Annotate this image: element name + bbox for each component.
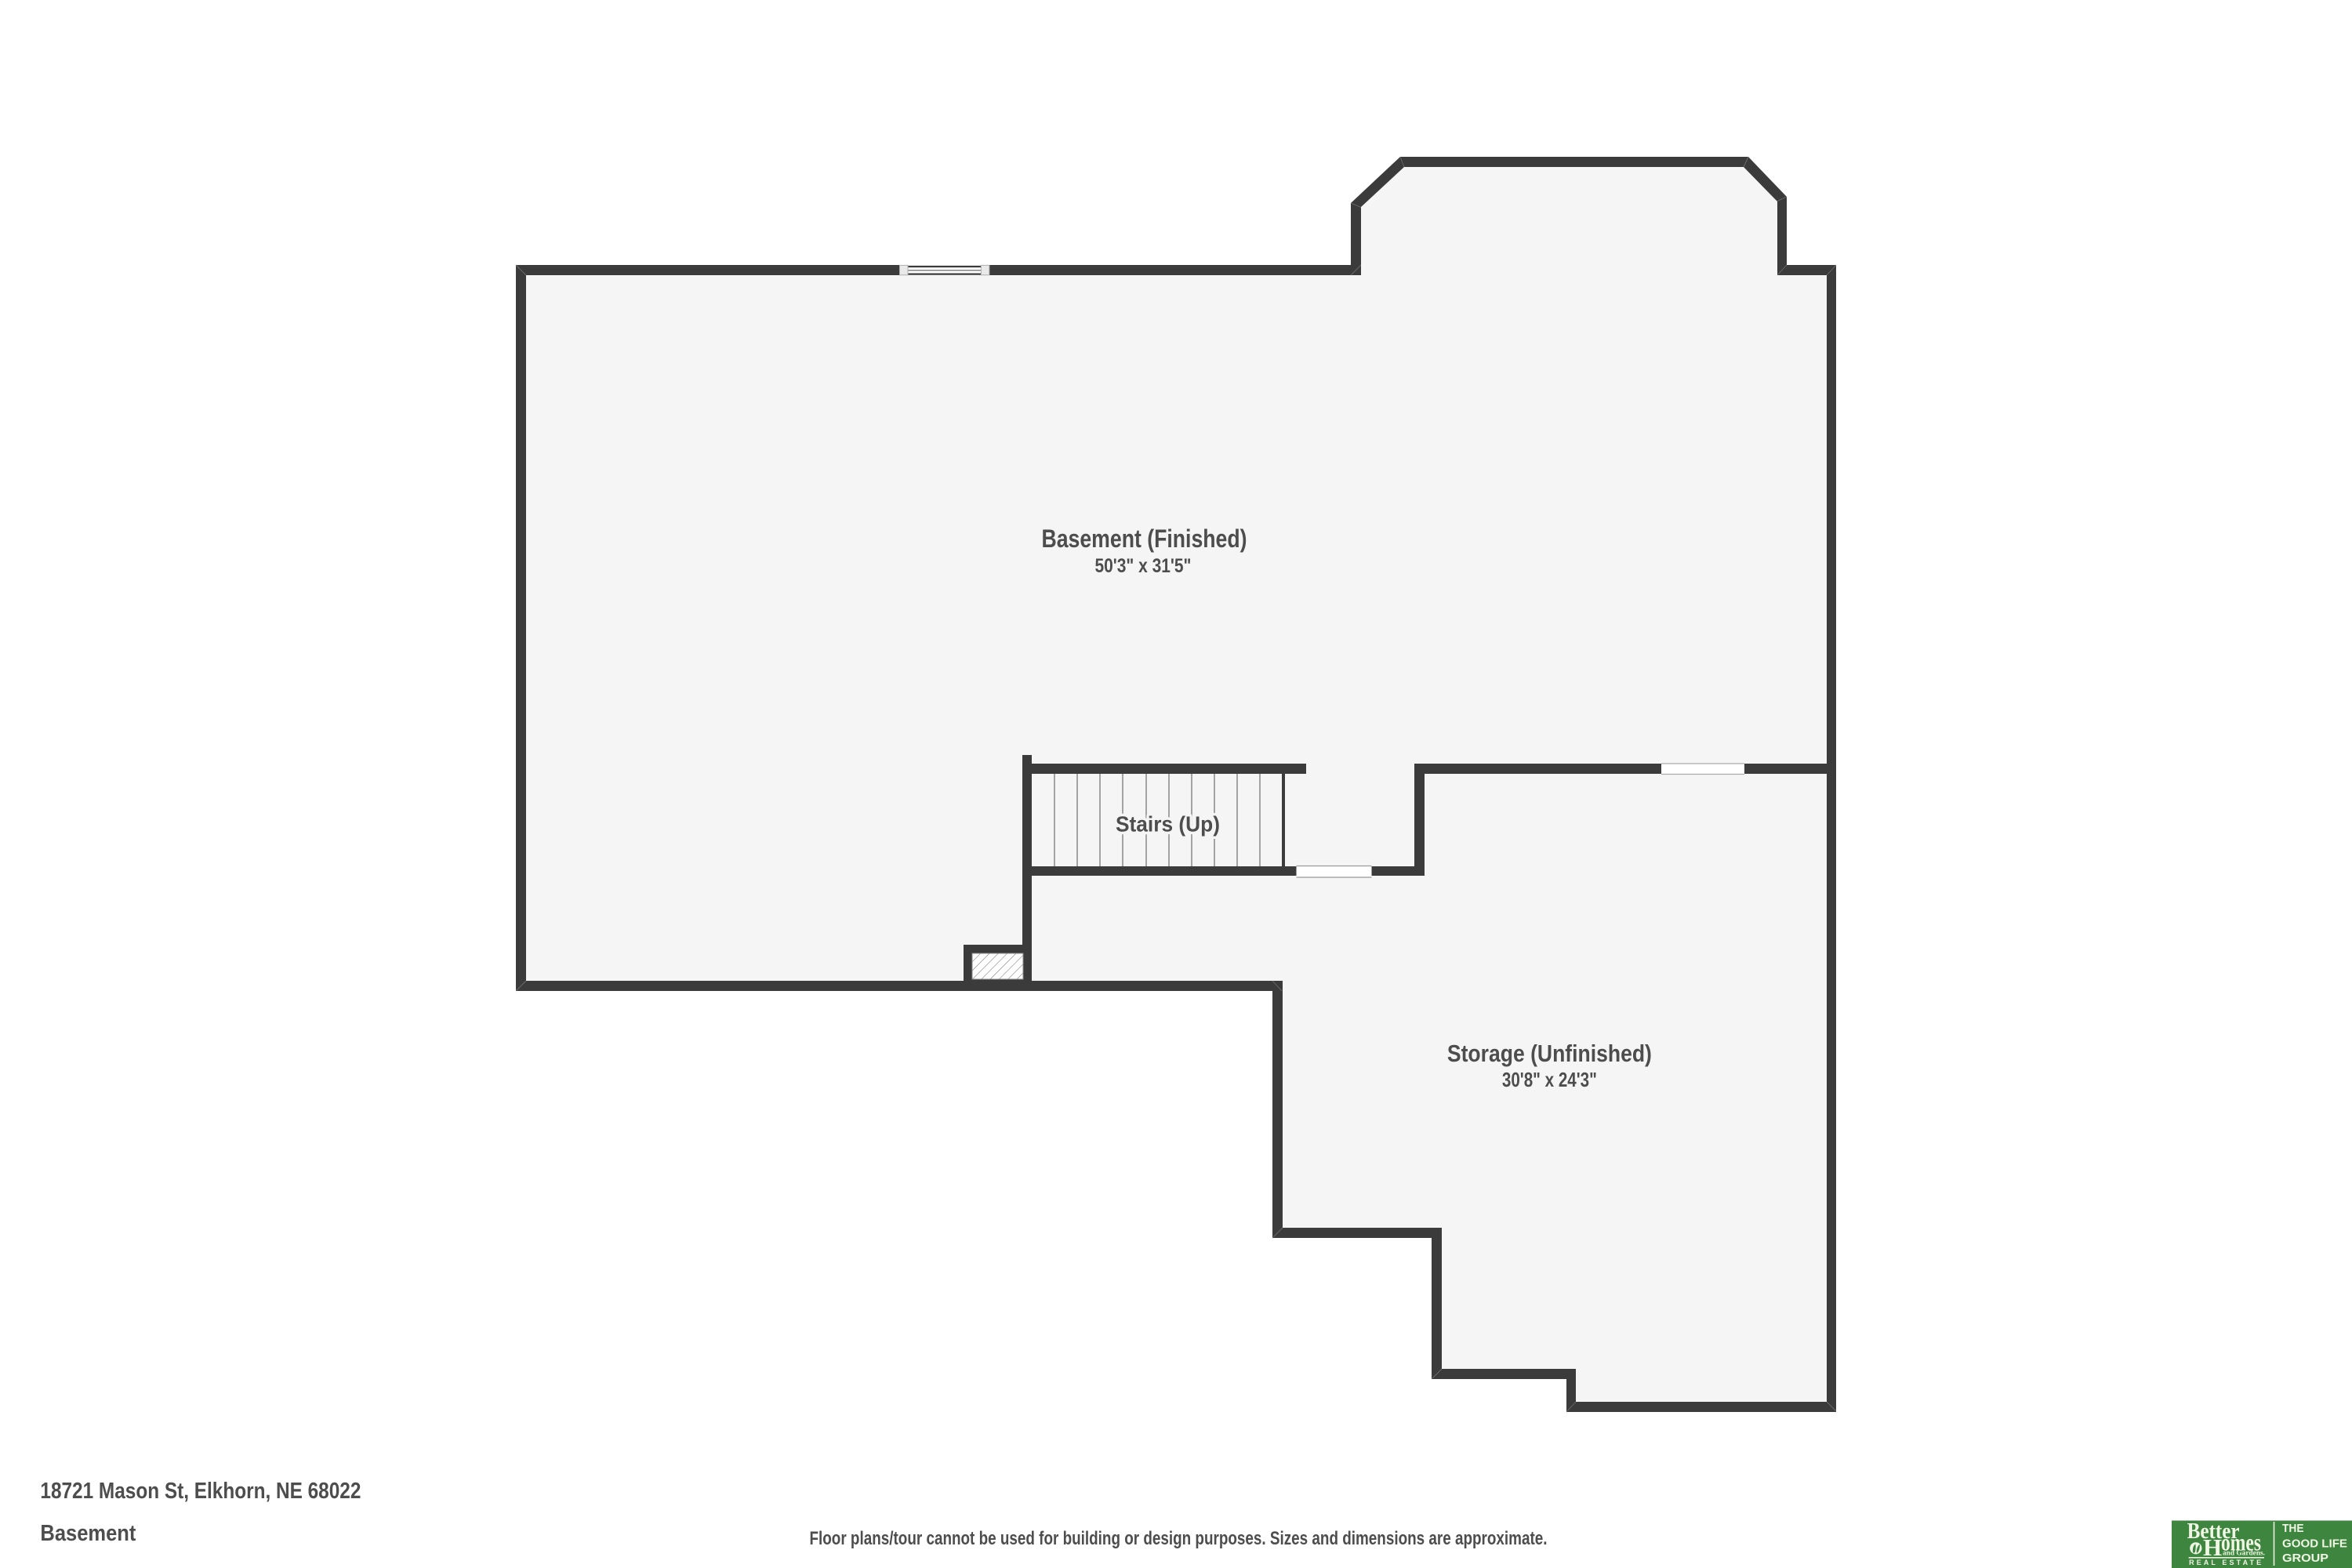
svg-text:Storage (Unfinished): Storage (Unfinished) <box>1447 1040 1652 1067</box>
svg-text:H: H <box>2203 1534 2222 1561</box>
svg-text:THE: THE <box>2282 1523 2304 1535</box>
svg-text:Floor plans/tour cannot be use: Floor plans/tour cannot be used for buil… <box>810 1528 1548 1549</box>
svg-text:and Gardens.: and Gardens. <box>2223 1550 2265 1558</box>
svg-text:GOOD LIFE: GOOD LIFE <box>2282 1537 2347 1550</box>
svg-text:GROUP: GROUP <box>2282 1552 2328 1565</box>
svg-text:REAL ESTATE: REAL ESTATE <box>2189 1559 2264 1566</box>
svg-text:Basement (Finished): Basement (Finished) <box>1042 524 1247 553</box>
svg-text:Basement: Basement <box>40 1521 136 1546</box>
svg-text:18721 Mason St, Elkhorn, NE 68: 18721 Mason St, Elkhorn, NE 68022 <box>40 1479 361 1504</box>
svg-text:30'8" x 24'3": 30'8" x 24'3" <box>1502 1068 1597 1091</box>
svg-text:Stairs (Up): Stairs (Up) <box>1116 812 1220 837</box>
svg-text:50'3" x 31'5": 50'3" x 31'5" <box>1095 555 1192 577</box>
